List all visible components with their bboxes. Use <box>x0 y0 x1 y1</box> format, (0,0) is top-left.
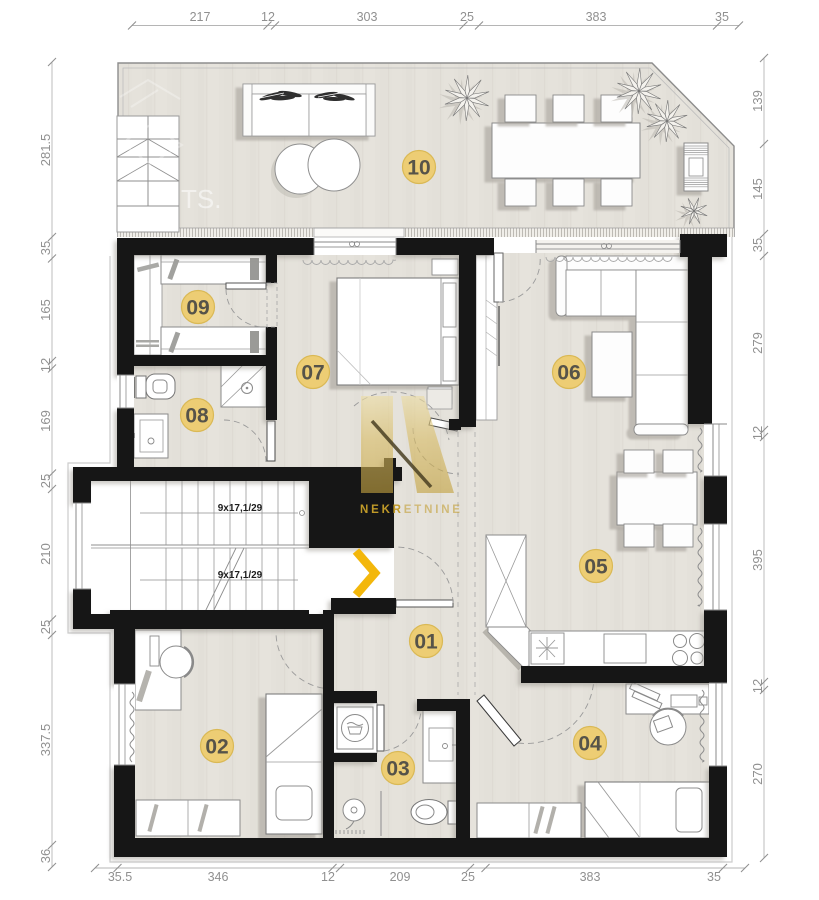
svg-text:210: 210 <box>38 543 53 565</box>
svg-text:12: 12 <box>321 870 335 884</box>
svg-text:02: 02 <box>205 736 228 759</box>
svg-text:279: 279 <box>750 332 765 354</box>
svg-text:04: 04 <box>578 733 602 756</box>
svg-text:25: 25 <box>38 474 53 488</box>
svg-text:346: 346 <box>208 870 229 884</box>
svg-text:9x17,1/29: 9x17,1/29 <box>218 503 263 514</box>
svg-text:395: 395 <box>750 549 765 571</box>
svg-text:03: 03 <box>386 758 409 781</box>
svg-text:383: 383 <box>586 10 607 24</box>
svg-text:337.5: 337.5 <box>38 724 53 757</box>
svg-text:36: 36 <box>38 849 53 863</box>
svg-text:139: 139 <box>750 90 765 112</box>
svg-text:06: 06 <box>557 362 580 385</box>
svg-text:12: 12 <box>38 358 53 372</box>
svg-text:9x17,1/29: 9x17,1/29 <box>218 570 263 581</box>
svg-text:12: 12 <box>750 426 765 440</box>
svg-text:08: 08 <box>185 405 209 428</box>
svg-text:01: 01 <box>414 631 438 654</box>
svg-text:217: 217 <box>190 10 211 24</box>
svg-text:303: 303 <box>357 10 378 24</box>
svg-text:209: 209 <box>390 870 411 884</box>
svg-text:25: 25 <box>38 620 53 634</box>
svg-text:281.5: 281.5 <box>38 134 53 167</box>
svg-text:35: 35 <box>715 10 729 24</box>
svg-text:05: 05 <box>584 556 608 579</box>
svg-text:165: 165 <box>38 299 53 321</box>
svg-text:12: 12 <box>261 10 275 24</box>
svg-text:270: 270 <box>750 763 765 785</box>
svg-text:35: 35 <box>750 238 765 252</box>
svg-text:169: 169 <box>38 410 53 432</box>
svg-text:35.5: 35.5 <box>108 870 132 884</box>
svg-text:145: 145 <box>750 178 765 200</box>
svg-text:383: 383 <box>580 870 601 884</box>
svg-text:35: 35 <box>707 870 721 884</box>
svg-text:35: 35 <box>38 241 53 255</box>
svg-text:10: 10 <box>407 157 430 180</box>
svg-text:NEKRETNINE: NEKRETNINE <box>360 504 463 516</box>
svg-text:TS.: TS. <box>181 184 221 214</box>
svg-text:12: 12 <box>750 679 765 693</box>
svg-text:07: 07 <box>301 362 324 385</box>
svg-text:25: 25 <box>461 870 475 884</box>
svg-text:09: 09 <box>186 297 209 320</box>
svg-text:25: 25 <box>460 10 474 24</box>
